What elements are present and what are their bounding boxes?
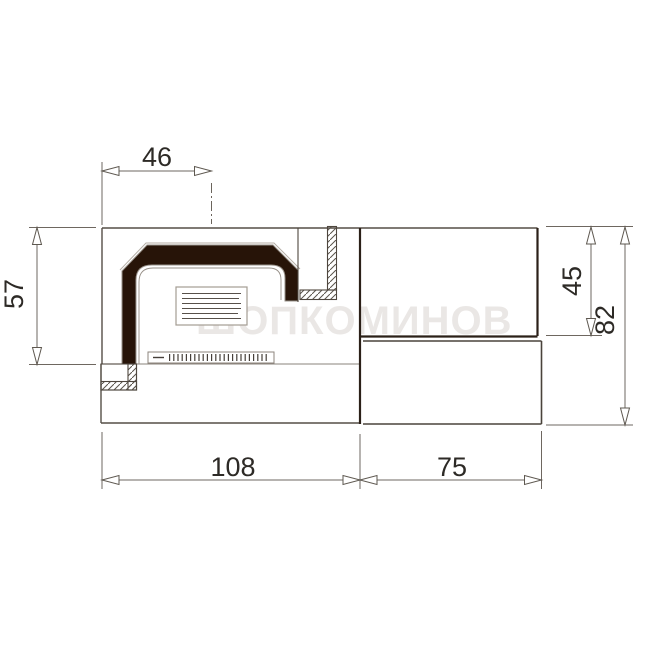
dimension-label: 108: [210, 452, 255, 482]
drawing-canvas: ШОПКОМИНОВ: [0, 0, 650, 650]
ash-grate: [148, 352, 274, 363]
door-grille: [176, 287, 247, 325]
arrowhead: [587, 227, 596, 244]
arrowhead: [621, 408, 630, 425]
arrowhead: [525, 476, 542, 485]
arrowhead: [33, 348, 42, 365]
dim-right-total-height: 82: [546, 227, 633, 426]
flue-bottom-hatch: [300, 290, 337, 300]
technical-drawing: 46 57 45 82: [0, 0, 650, 650]
flue-wall-hatch: [328, 227, 337, 291]
dim-bottom-right-width: 75: [360, 431, 542, 489]
dim-top-offset: 46: [102, 142, 212, 225]
arrowhead: [195, 167, 212, 176]
arrowhead: [102, 476, 119, 485]
flue-channel-section: [298, 227, 337, 303]
arrowhead: [33, 228, 42, 245]
lower-right-block-outline: [363, 341, 542, 424]
dimension-label: 82: [590, 305, 620, 335]
air-duct-section: [101, 364, 137, 390]
arrowhead: [102, 167, 119, 176]
arrowhead: [343, 476, 360, 485]
upper-right-block-outline: [360, 228, 538, 424]
arrowhead: [621, 227, 630, 244]
dimension-label: 46: [142, 142, 172, 172]
dimension-label: 75: [437, 452, 467, 482]
dim-bottom-left-width: 108: [102, 432, 360, 489]
arrowhead: [360, 476, 377, 485]
dim-left-height: 57: [0, 228, 96, 365]
dimension-label: 45: [557, 266, 587, 296]
dimension-label: 57: [0, 279, 29, 309]
air-duct-hatch-horizontal: [101, 382, 137, 391]
